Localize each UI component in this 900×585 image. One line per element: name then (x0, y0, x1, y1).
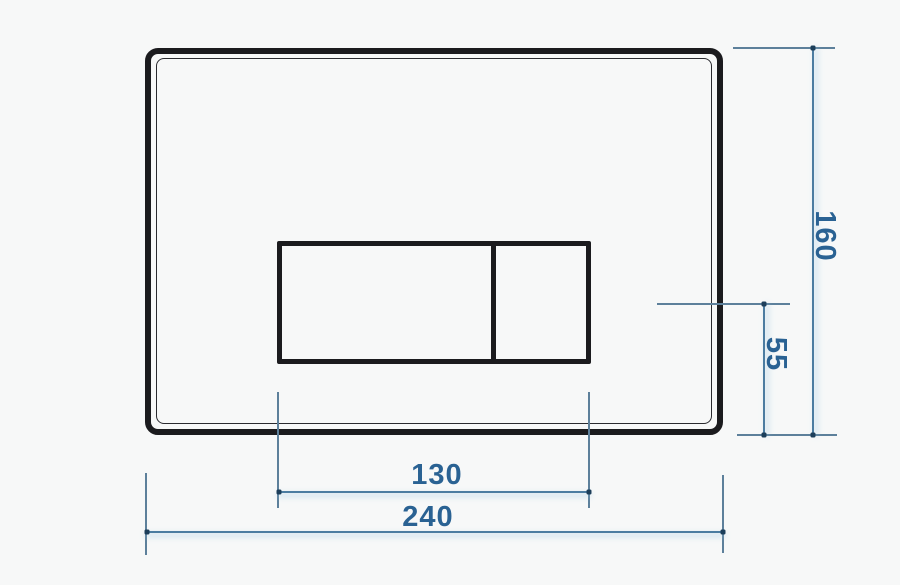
dimension-label-width: 240 (378, 502, 478, 532)
button-divider-line (491, 243, 496, 362)
dimension-tick (811, 46, 816, 51)
dimension-tick (587, 490, 592, 495)
dimension-label-buttons-width: 130 (387, 460, 487, 490)
extension-line-right (722, 475, 724, 553)
dimension-drawing-canvas: 160 55 130 240 (0, 0, 900, 585)
dimension-tick (721, 530, 726, 535)
dimension-tick (277, 490, 282, 495)
dimension-label-offset: 55 (761, 319, 791, 389)
dimension-tick (811, 433, 816, 438)
button-panel-outline (277, 241, 591, 364)
dimension-tick (762, 302, 767, 307)
extension-line-left (145, 473, 147, 555)
dimension-line (278, 491, 590, 493)
extension-line-bottom (737, 434, 837, 436)
dimension-tick (145, 530, 150, 535)
dimension-label-height: 160 (810, 201, 840, 271)
extension-line-center (657, 303, 790, 305)
dimension-tick (762, 433, 767, 438)
extension-line-top (733, 47, 835, 49)
